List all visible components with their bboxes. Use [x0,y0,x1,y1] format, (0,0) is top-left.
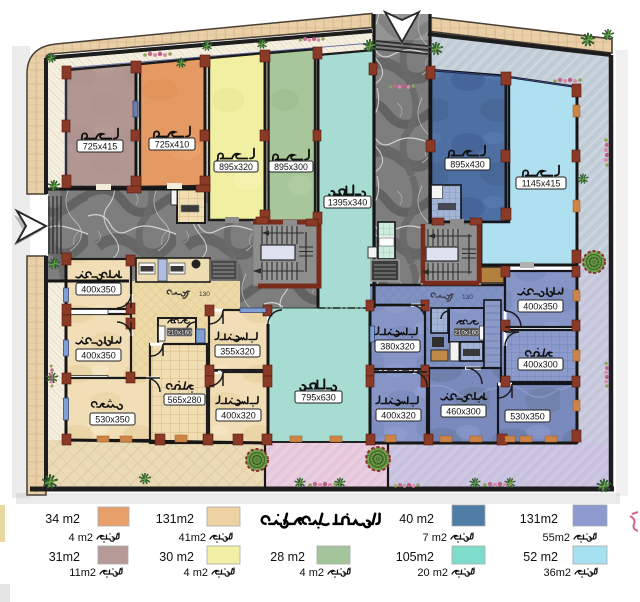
svg-text:55m2: 55m2 [542,532,570,544]
svg-text:4 m2: 4 m2 [184,567,208,579]
svg-text:20 m2: 20 m2 [417,567,448,579]
svg-text:31m2: 31m2 [49,550,80,564]
svg-text:130: 130 [462,294,473,301]
svg-text:11m2: 11m2 [69,567,96,579]
svg-text:400x350: 400x350 [523,302,558,312]
svg-text:52 m2: 52 m2 [523,550,558,564]
svg-text:130: 130 [199,291,210,298]
svg-text:530x350: 530x350 [95,415,130,425]
svg-text:30 m2: 30 m2 [159,550,194,564]
svg-text:895x320: 895x320 [219,162,253,172]
svg-text:530x350: 530x350 [510,412,545,422]
svg-text:4 m2: 4 m2 [300,567,324,579]
svg-text:895x300: 895x300 [274,162,308,172]
svg-text:355x320: 355x320 [220,347,255,357]
svg-text:400x350: 400x350 [81,351,116,361]
svg-text:41m2: 41m2 [178,532,206,544]
svg-text:34 m2: 34 m2 [45,512,80,526]
svg-text:4 m2: 4 m2 [69,532,93,544]
svg-text:1145x415: 1145x415 [522,179,561,189]
svg-text:131m2: 131m2 [156,512,194,526]
svg-text:725x415: 725x415 [83,142,118,152]
svg-text:565x280: 565x280 [168,395,202,405]
svg-text:40 m2: 40 m2 [399,512,434,526]
svg-text:28 m2: 28 m2 [270,550,305,564]
svg-text:36m2: 36m2 [543,567,571,579]
svg-text:400x320: 400x320 [221,411,256,421]
svg-text:210x160: 210x160 [454,330,479,337]
svg-text:400x350: 400x350 [81,285,116,295]
svg-text:105m2: 105m2 [396,550,434,564]
svg-text:895x430: 895x430 [450,160,485,170]
svg-text:131m2: 131m2 [520,512,558,526]
svg-text:400x300: 400x300 [523,360,558,370]
svg-text:7 m2: 7 m2 [423,532,447,544]
svg-text:210x160: 210x160 [167,330,192,337]
svg-text:460x300: 460x300 [446,407,481,417]
svg-text:400x320: 400x320 [381,411,416,421]
svg-text:725x410: 725x410 [155,140,190,150]
svg-text:380x320: 380x320 [380,342,415,352]
svg-text:795x630: 795x630 [301,393,336,403]
svg-text:1395x340: 1395x340 [328,198,368,208]
